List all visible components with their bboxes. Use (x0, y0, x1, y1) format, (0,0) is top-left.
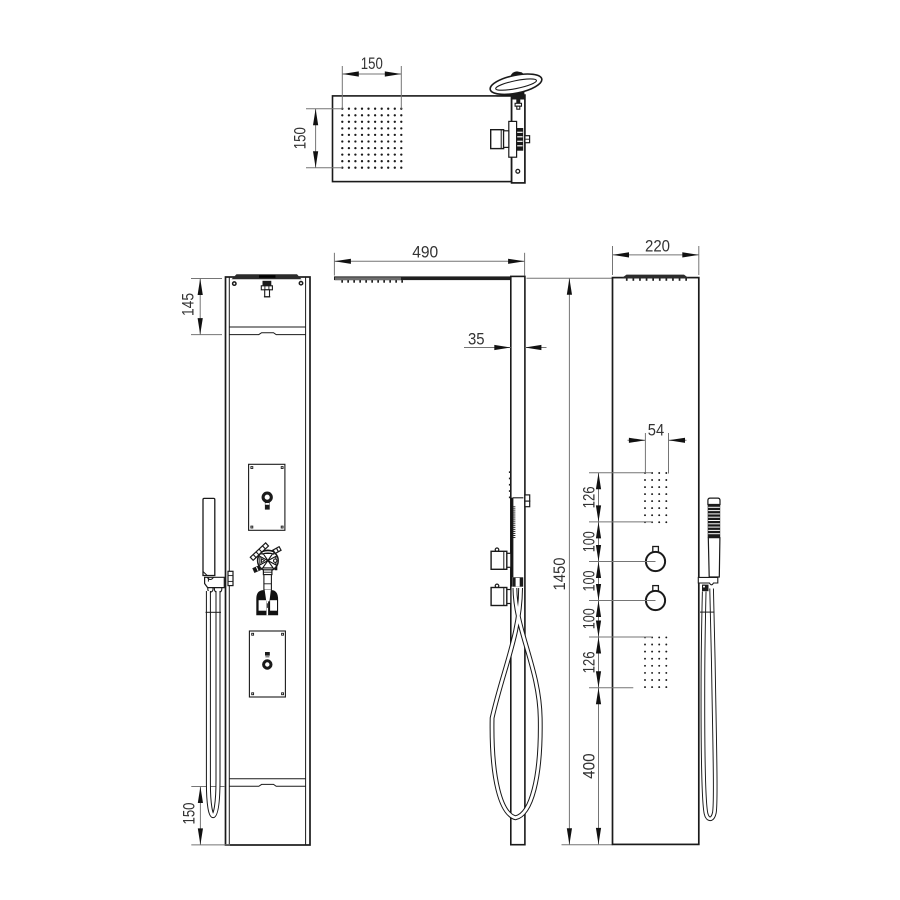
svg-text:490: 490 (412, 242, 438, 261)
svg-text:220: 220 (645, 236, 670, 255)
svg-text:100: 100 (579, 531, 598, 552)
svg-text:150: 150 (361, 54, 383, 73)
svg-text:54: 54 (648, 420, 664, 439)
svg-text:150: 150 (290, 127, 309, 149)
svg-text:145: 145 (179, 293, 198, 316)
svg-text:100: 100 (579, 608, 598, 629)
svg-text:150: 150 (180, 803, 199, 825)
svg-text:126: 126 (579, 486, 598, 508)
svg-text:126: 126 (579, 651, 598, 673)
svg-text:1450: 1450 (550, 558, 569, 591)
svg-text:35: 35 (468, 330, 485, 349)
svg-text:100: 100 (579, 571, 598, 592)
svg-text:400: 400 (579, 753, 598, 779)
